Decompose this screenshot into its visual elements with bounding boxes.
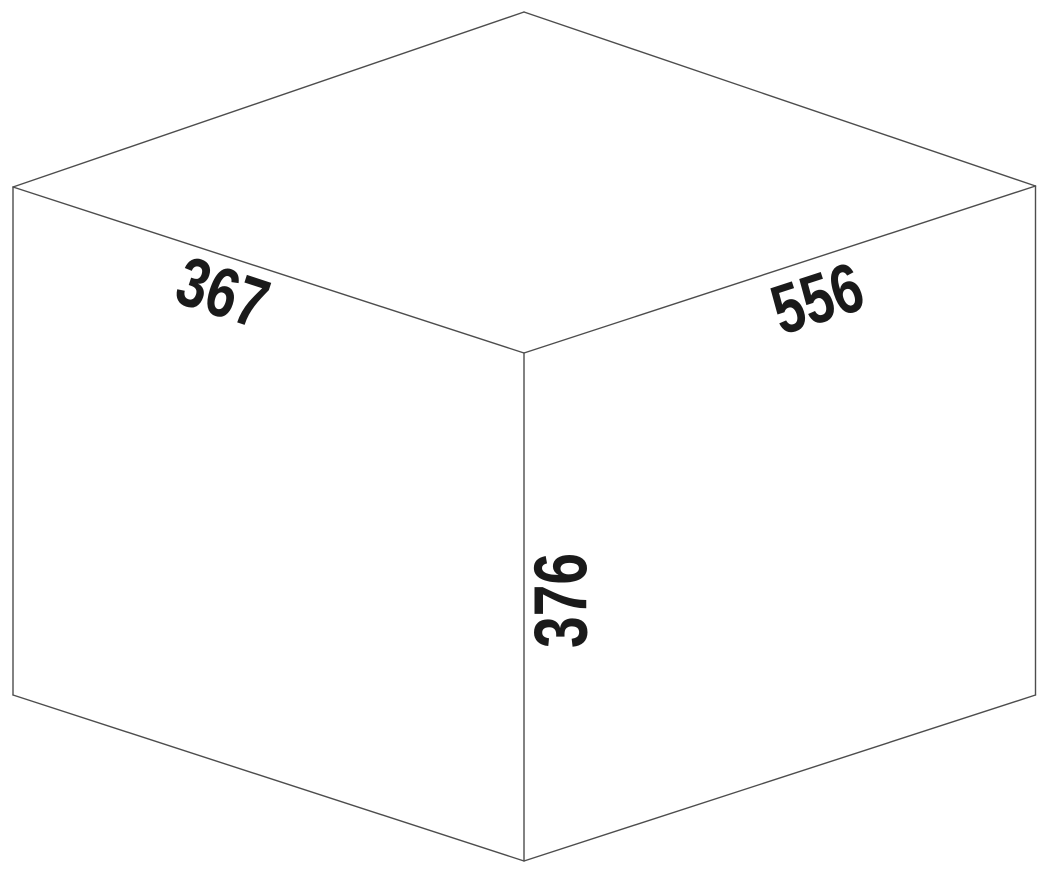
svg-text:376: 376 [520,553,603,648]
